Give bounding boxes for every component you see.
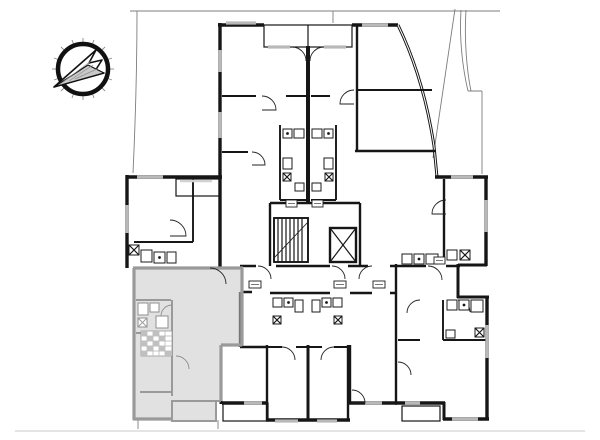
north-arrow-icon [52,38,114,100]
staircase [274,218,308,262]
elevator-icon [330,228,356,262]
kitchen-tile-floor [141,331,172,356]
floor-plan-page [0,0,600,440]
highlighted-apartment[interactable] [133,268,243,422]
floor-plan [0,0,600,440]
